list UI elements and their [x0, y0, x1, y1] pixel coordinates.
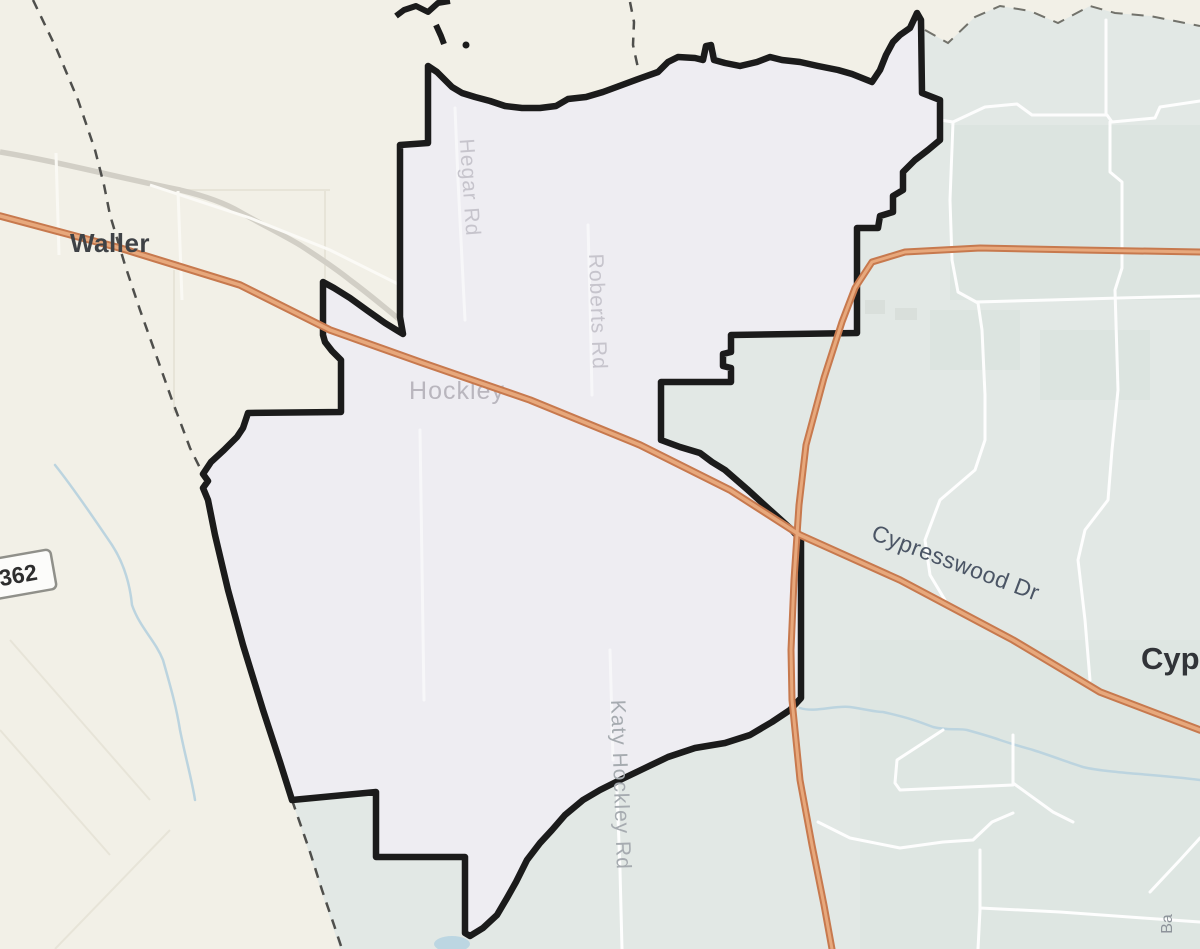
city-label-hockley: Hockley: [409, 377, 505, 405]
road-label-ba-partial: Ba: [1159, 914, 1176, 934]
road-label-roberts-rd: Roberts Rd: [584, 253, 611, 370]
city-label-cypress-partial: Cyp: [1141, 641, 1200, 676]
city-label-waller: Waller: [70, 228, 150, 258]
map-canvas[interactable]: Hockley Hegar Rd Roberts Rd Katy Hockley…: [0, 0, 1200, 949]
